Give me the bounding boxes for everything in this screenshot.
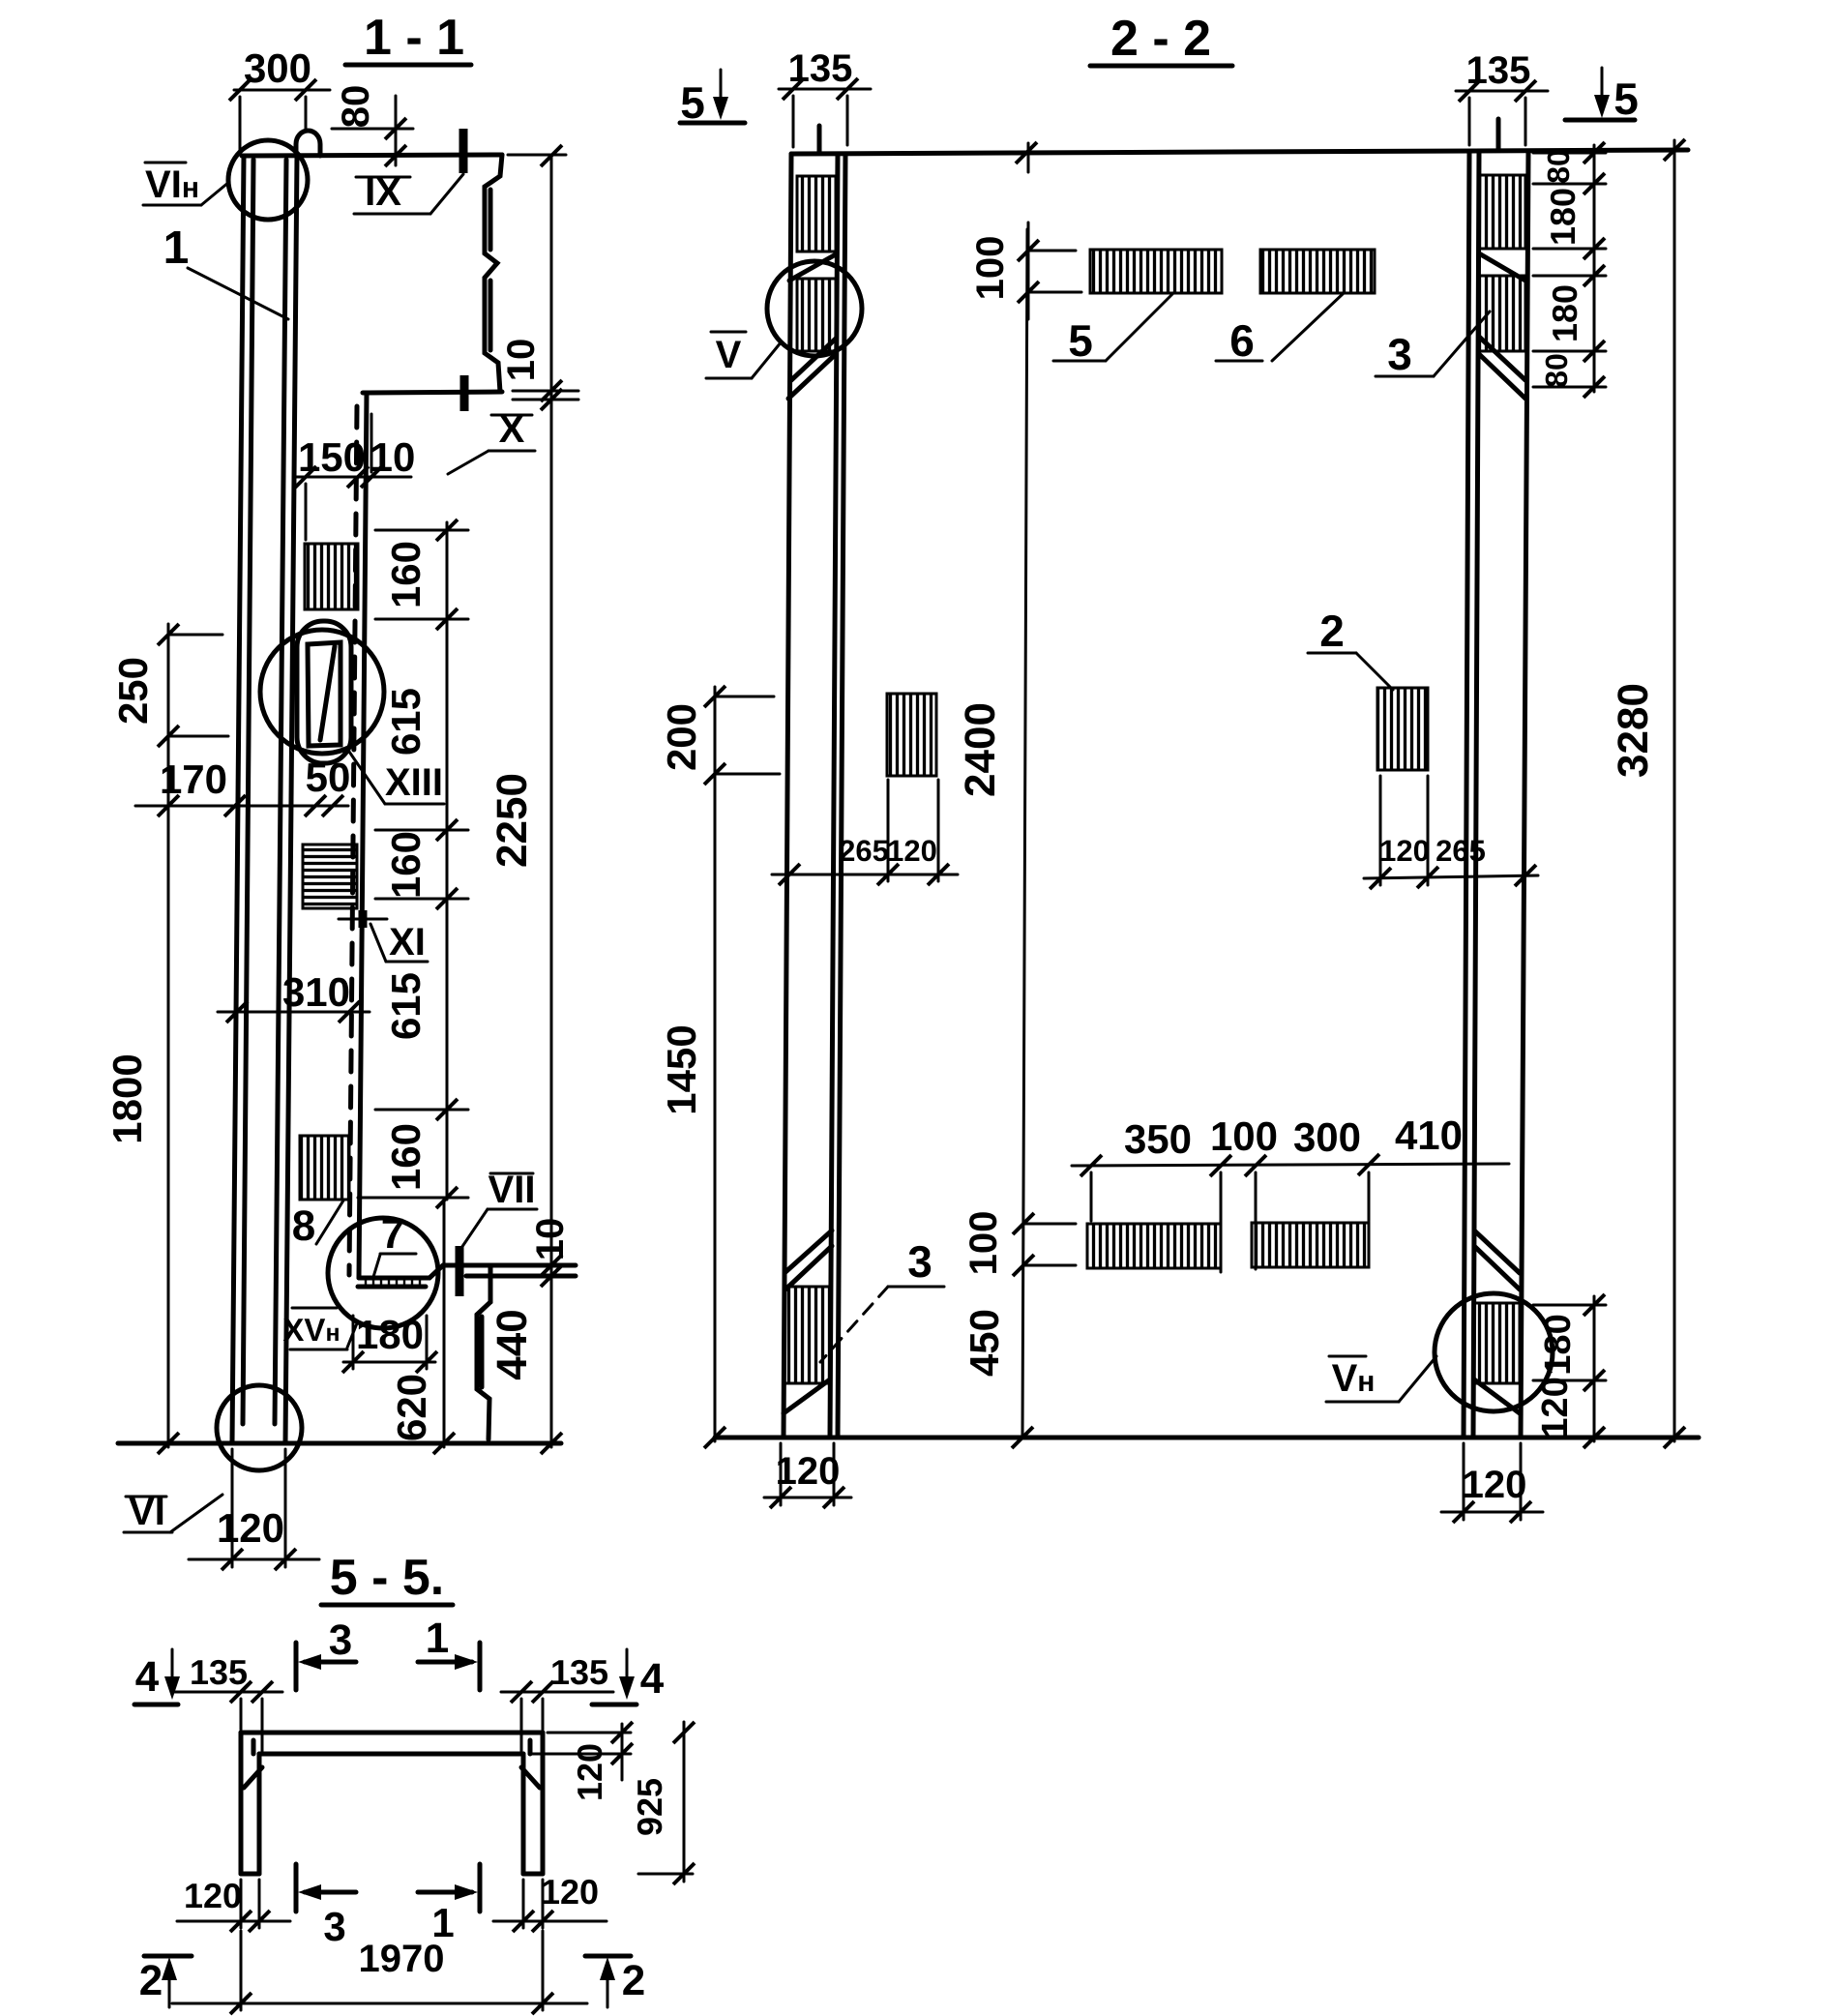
- svg-text:180: 180: [1543, 188, 1583, 246]
- svg-text:3: 3: [1387, 329, 1412, 379]
- svg-text:1450: 1450: [659, 1024, 704, 1114]
- svg-text:120: 120: [1535, 1377, 1576, 1438]
- svg-text:160: 160: [383, 831, 429, 899]
- svg-text:50: 50: [306, 755, 351, 800]
- svg-text:135: 135: [1466, 49, 1531, 92]
- svg-text:440: 440: [488, 1309, 536, 1379]
- svg-text:3: 3: [323, 1904, 345, 1949]
- svg-text:4: 4: [640, 1655, 665, 1703]
- svg-text:XIII: XIII: [385, 761, 443, 804]
- svg-text:120: 120: [1463, 1464, 1527, 1506]
- svg-text:300: 300: [1293, 1114, 1361, 1160]
- svg-text:350: 350: [1124, 1116, 1192, 1162]
- svg-text:1: 1: [426, 1615, 449, 1662]
- svg-text:120: 120: [570, 1743, 609, 1801]
- svg-text:3: 3: [329, 1616, 352, 1664]
- svg-text:5: 5: [1068, 315, 1093, 366]
- svg-text:150: 150: [298, 434, 366, 480]
- svg-text:250: 250: [110, 657, 156, 725]
- svg-text:80: 80: [335, 85, 377, 129]
- svg-text:200: 200: [659, 703, 704, 771]
- svg-text:3280: 3280: [1610, 683, 1657, 778]
- svg-text:265: 265: [839, 834, 889, 868]
- svg-text:80: 80: [1539, 353, 1574, 388]
- svg-text:100: 100: [962, 1211, 1005, 1276]
- svg-text:120: 120: [776, 1450, 841, 1493]
- svg-text:120: 120: [217, 1505, 284, 1551]
- svg-text:265: 265: [1435, 834, 1486, 868]
- svg-text:1 - 1: 1 - 1: [364, 10, 464, 66]
- svg-text:80: 80: [1541, 149, 1576, 184]
- svg-text:10: 10: [500, 339, 543, 382]
- svg-text:1800: 1800: [104, 1053, 150, 1143]
- svg-text:925: 925: [630, 1778, 669, 1836]
- svg-text:5: 5: [1613, 74, 1639, 124]
- svg-text:2: 2: [139, 1957, 163, 2004]
- svg-text:XI: XI: [389, 921, 426, 964]
- svg-text:410: 410: [1395, 1112, 1463, 1158]
- svg-text:180: 180: [1538, 1314, 1579, 1375]
- svg-text:160: 160: [383, 1123, 429, 1191]
- svg-text:VII: VII: [488, 1169, 536, 1211]
- svg-text:180: 180: [1545, 284, 1584, 342]
- svg-text:170: 170: [160, 756, 227, 802]
- svg-text:8: 8: [292, 1202, 315, 1250]
- svg-text:450: 450: [962, 1309, 1007, 1377]
- svg-text:2 - 2: 2 - 2: [1110, 11, 1211, 67]
- svg-text:7: 7: [381, 1210, 404, 1258]
- svg-text:6: 6: [1229, 315, 1255, 366]
- svg-text:180: 180: [356, 1312, 424, 1357]
- svg-text:V: V: [716, 334, 742, 376]
- svg-text:2: 2: [622, 1957, 645, 2004]
- svg-text:120: 120: [1379, 834, 1430, 868]
- svg-text:3: 3: [907, 1236, 932, 1287]
- svg-text:620: 620: [389, 1374, 434, 1441]
- svg-text:100: 100: [969, 236, 1012, 301]
- svg-text:10: 10: [529, 1218, 572, 1261]
- svg-text:615: 615: [383, 972, 429, 1040]
- svg-text:2: 2: [1319, 606, 1345, 656]
- svg-text:135: 135: [550, 1652, 608, 1692]
- svg-text:120: 120: [184, 1876, 242, 1915]
- svg-text:5: 5: [680, 77, 705, 128]
- svg-text:2250: 2250: [488, 773, 536, 868]
- svg-text:310: 310: [282, 969, 350, 1015]
- svg-text:300: 300: [244, 45, 311, 91]
- svg-text:135: 135: [190, 1652, 248, 1692]
- svg-text:1: 1: [163, 222, 190, 274]
- svg-text:120: 120: [541, 1872, 599, 1912]
- svg-text:4: 4: [135, 1653, 160, 1701]
- svg-text:1970: 1970: [359, 1938, 445, 1980]
- svg-text:10: 10: [370, 434, 416, 480]
- svg-text:160: 160: [383, 541, 429, 608]
- svg-text:615: 615: [383, 688, 429, 756]
- svg-text:5 - 5.: 5 - 5.: [330, 1550, 445, 1606]
- svg-text:2400: 2400: [957, 702, 1004, 797]
- svg-text:100: 100: [1210, 1113, 1278, 1159]
- svg-text:120: 120: [887, 834, 937, 868]
- svg-text:135: 135: [788, 47, 853, 90]
